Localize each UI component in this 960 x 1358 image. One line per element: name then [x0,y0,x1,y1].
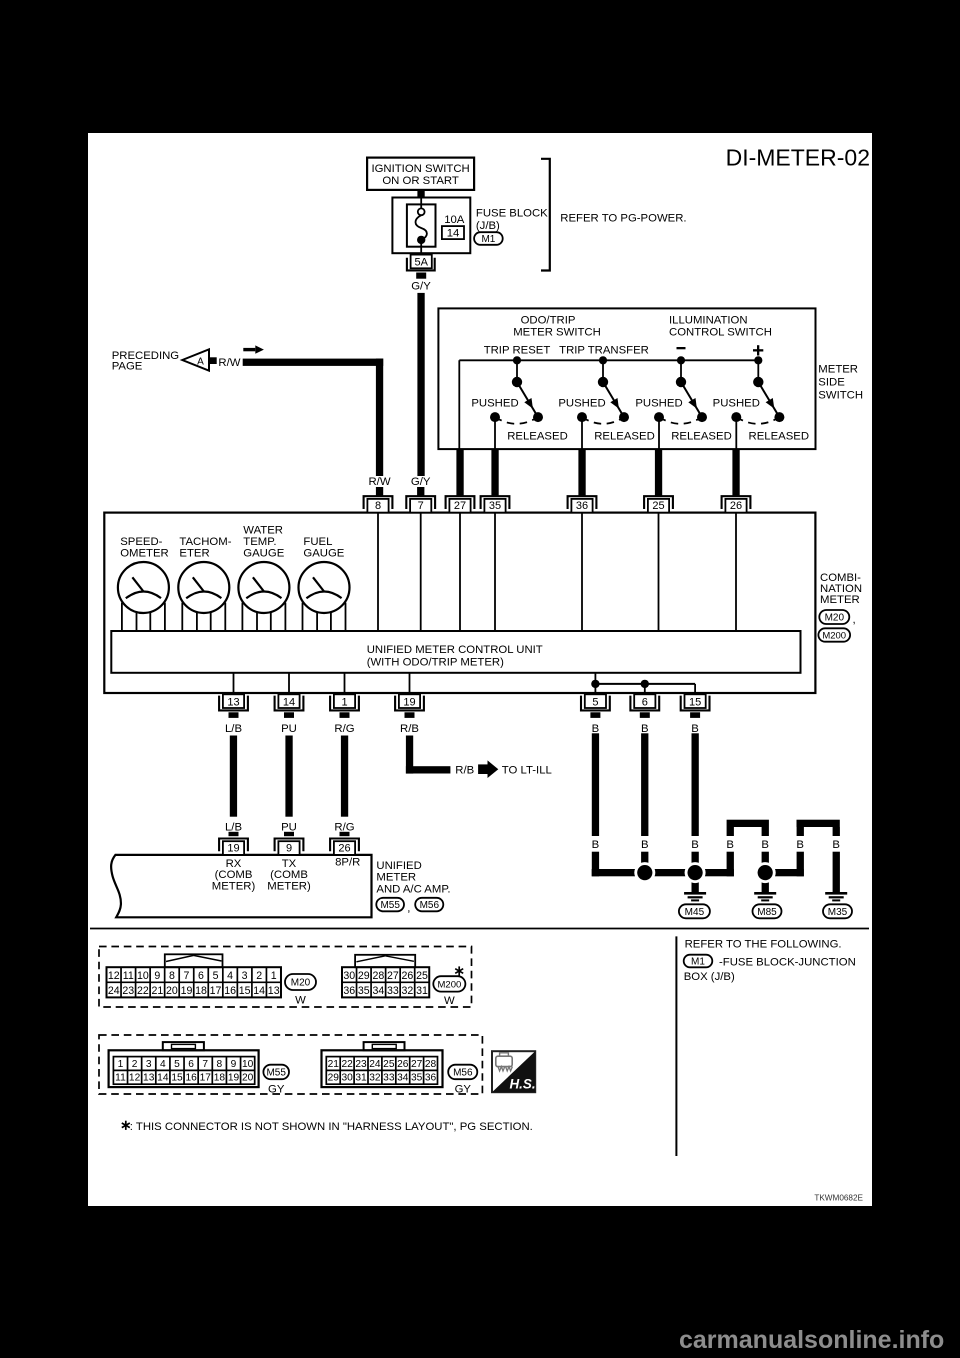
svg-text:23: 23 [355,1059,367,1070]
svg-text:17: 17 [210,985,222,997]
svg-text:15: 15 [171,1073,183,1084]
svg-text:1: 1 [341,696,347,708]
svg-text:3: 3 [242,970,248,982]
svg-text:8: 8 [375,500,381,512]
svg-text:13: 13 [227,696,239,708]
svg-text:23: 23 [122,985,134,997]
svg-text:13: 13 [268,985,280,997]
svg-text:20: 20 [166,985,178,997]
svg-text:carmanualsonline.info: carmanualsonline.info [679,1326,944,1354]
svg-text:35: 35 [358,985,370,997]
svg-text:OMETER: OMETER [120,548,169,560]
svg-text:B: B [641,723,649,735]
svg-text:ON OR START: ON OR START [382,175,459,187]
svg-text:33: 33 [387,985,399,997]
svg-text:28: 28 [425,1059,437,1070]
svg-text:(WITH ODO/TRIP METER): (WITH ODO/TRIP METER) [367,656,504,668]
svg-text:36: 36 [425,1073,437,1084]
svg-text:(COMB: (COMB [270,869,308,881]
svg-text:16: 16 [185,1073,197,1084]
svg-text:(COMB: (COMB [215,869,253,881]
svg-text:RX: RX [226,858,242,870]
svg-text:M85: M85 [757,907,777,918]
svg-text:,: , [407,903,410,915]
svg-text:30: 30 [343,970,355,982]
svg-text:14: 14 [447,228,460,240]
svg-text:ODO/TRIP: ODO/TRIP [521,314,576,326]
svg-text:35: 35 [489,500,501,512]
svg-text:12: 12 [108,970,120,982]
svg-text:26: 26 [338,843,350,855]
svg-text:B: B [691,723,699,735]
svg-text:W: W [295,995,306,1007]
svg-text:14: 14 [283,696,295,708]
svg-text:IGNITION SWITCH: IGNITION SWITCH [371,163,469,175]
svg-text:GAUGE: GAUGE [243,548,284,560]
svg-text:31: 31 [355,1073,367,1084]
svg-text:15: 15 [689,696,701,708]
svg-text:DI-METER-02: DI-METER-02 [726,145,870,171]
svg-text:M56: M56 [453,1068,473,1079]
svg-text:FUSE BLOCK: FUSE BLOCK [476,208,548,220]
svg-text:M200: M200 [822,630,846,641]
svg-text:SIDE: SIDE [818,377,845,389]
svg-text:A: A [197,356,204,367]
svg-text:SPEED-: SPEED- [120,536,162,548]
svg-text:34: 34 [372,985,384,997]
svg-text:,: , [853,614,856,626]
svg-text:M56: M56 [420,900,440,911]
svg-text:GAUGE: GAUGE [303,548,344,560]
svg-text:TRIP TRANSFER: TRIP TRANSFER [559,345,649,357]
svg-text:17: 17 [200,1073,212,1084]
svg-text:BOX (J/B): BOX (J/B) [684,971,735,983]
svg-text:RELEASED: RELEASED [507,430,568,442]
svg-text:B: B [592,723,600,735]
svg-text:27: 27 [387,970,399,982]
svg-text:REFER TO THE FOLLOWING.: REFER TO THE FOLLOWING. [685,938,842,950]
svg-text:TX: TX [282,858,297,870]
svg-text:METER: METER [818,364,858,376]
svg-text:6: 6 [642,696,648,708]
svg-text:11: 11 [115,1073,126,1084]
svg-text:7: 7 [184,970,190,982]
svg-text:B: B [796,839,804,851]
svg-text:1: 1 [118,1059,124,1070]
svg-text:11: 11 [123,970,134,982]
svg-text:M35: M35 [828,907,848,918]
svg-text:METER: METER [820,594,860,606]
svg-text:5: 5 [213,970,219,982]
svg-text:12: 12 [129,1073,141,1084]
svg-text:B: B [832,839,840,851]
svg-text:UNIFIED METER CONTROL UNIT: UNIFIED METER CONTROL UNIT [367,644,543,656]
svg-text:19: 19 [228,1073,240,1084]
svg-text:13: 13 [143,1073,155,1084]
svg-text:RELEASED: RELEASED [594,430,655,442]
svg-text:PUSHED: PUSHED [713,397,760,409]
svg-text:TEMP.: TEMP. [243,536,276,548]
svg-text:PU: PU [281,723,297,735]
svg-text:METER SWITCH: METER SWITCH [513,327,601,339]
svg-text:27: 27 [454,500,466,512]
svg-text:ETER: ETER [179,548,209,560]
svg-text:26: 26 [402,970,414,982]
svg-text:19: 19 [227,843,239,855]
svg-text:6: 6 [188,1059,194,1070]
svg-text:: THIS CONNECTOR IS NOT SHOWN: : THIS CONNECTOR IS NOT SHOWN IN "HARNES… [130,1121,533,1133]
svg-text:TKWM0682E: TKWM0682E [814,1193,863,1202]
svg-text:B: B [761,839,769,851]
svg-text:TACHOM-: TACHOM- [179,536,231,548]
svg-text:PU: PU [281,821,297,833]
svg-text:-FUSE BLOCK-JUNCTION: -FUSE BLOCK-JUNCTION [719,956,856,968]
svg-text:28: 28 [372,970,384,982]
svg-text:2: 2 [132,1059,138,1070]
svg-text:PUSHED: PUSHED [558,397,605,409]
svg-text:B: B [592,839,600,851]
svg-text:15: 15 [239,985,251,997]
svg-text:9: 9 [154,970,160,982]
svg-text:TRIP RESET: TRIP RESET [484,345,551,357]
svg-text:SWITCH: SWITCH [818,390,863,402]
svg-text:B: B [726,839,734,851]
svg-text:R/G: R/G [334,821,354,833]
svg-text:G/Y: G/Y [411,476,431,488]
svg-text:8: 8 [217,1059,223,1070]
svg-text:29: 29 [328,1073,340,1084]
svg-text:26: 26 [397,1059,409,1070]
svg-text:22: 22 [137,985,149,997]
svg-text:18: 18 [195,985,207,997]
svg-text:FUEL: FUEL [303,536,332,548]
svg-text:19: 19 [181,985,193,997]
svg-text:36: 36 [343,985,355,997]
svg-text:WATER: WATER [243,525,283,537]
svg-text:G/Y: G/Y [411,280,431,292]
svg-text:M55: M55 [380,900,400,911]
svg-text:10: 10 [242,1059,254,1070]
svg-text:1: 1 [271,970,277,982]
svg-text:GY: GY [455,1084,472,1096]
svg-text:10: 10 [137,970,149,982]
svg-text:19: 19 [403,696,415,708]
svg-text:2: 2 [256,970,262,982]
svg-text:H.S.: H.S. [510,1077,536,1092]
svg-text:29: 29 [358,970,370,982]
svg-text:32: 32 [369,1073,381,1084]
svg-text:M55: M55 [266,1068,286,1079]
svg-text:L/B: L/B [225,821,242,833]
svg-text:4: 4 [227,970,233,982]
svg-text:25: 25 [652,500,664,512]
svg-text:9: 9 [231,1059,237,1070]
svg-text:34: 34 [397,1073,409,1084]
svg-text:R/W: R/W [218,357,240,369]
svg-text:M45: M45 [685,907,705,918]
svg-text:METER): METER) [267,880,311,892]
svg-text:26: 26 [730,500,742,512]
svg-text:GY: GY [268,1084,285,1096]
svg-text:B: B [691,839,699,851]
svg-text:25: 25 [383,1059,395,1070]
svg-text:18: 18 [214,1073,226,1084]
svg-text:R/B: R/B [400,723,419,735]
svg-text:METER): METER) [212,880,256,892]
svg-text:W: W [444,995,455,1007]
svg-text:5: 5 [592,696,598,708]
svg-text:33: 33 [383,1073,395,1084]
svg-text:27: 27 [411,1059,423,1070]
svg-text:METER: METER [376,872,416,884]
svg-text:ILLUMINATION: ILLUMINATION [669,314,748,326]
svg-text:R/B: R/B [455,764,474,776]
svg-text:PAGE: PAGE [112,361,143,373]
svg-text:PUSHED: PUSHED [635,397,682,409]
svg-text:9: 9 [286,843,292,855]
svg-text:REFER TO PG-POWER.: REFER TO PG-POWER. [560,212,686,224]
svg-text:25: 25 [416,970,428,982]
svg-text:CONTROL SWITCH: CONTROL SWITCH [669,327,772,339]
svg-text:PUSHED: PUSHED [471,397,518,409]
svg-text:32: 32 [402,985,414,997]
svg-text:M20: M20 [291,978,311,989]
svg-text:L/B: L/B [225,723,242,735]
svg-text:4: 4 [160,1059,166,1070]
svg-text:B: B [641,839,649,851]
svg-text:M20: M20 [825,613,845,624]
svg-text:8: 8 [169,970,175,982]
svg-text:16: 16 [224,985,236,997]
svg-text:10A: 10A [444,214,465,226]
svg-text:M1: M1 [481,234,495,245]
svg-text:3: 3 [146,1059,152,1070]
svg-text:20: 20 [242,1073,254,1084]
svg-text:14: 14 [157,1073,169,1084]
svg-text:36: 36 [576,500,588,512]
svg-text:TO LT-ILL: TO LT-ILL [502,765,552,777]
svg-text:7: 7 [418,500,424,512]
svg-text:(J/B): (J/B) [476,220,500,232]
svg-text:7: 7 [202,1059,208,1070]
svg-text:24: 24 [369,1059,381,1070]
svg-text:RELEASED: RELEASED [671,430,732,442]
svg-text:8P/R: 8P/R [335,856,360,868]
svg-text:M1: M1 [691,957,705,968]
svg-text:5A: 5A [414,257,428,269]
svg-text:M200: M200 [438,979,462,990]
svg-text:RELEASED: RELEASED [749,430,810,442]
svg-text:21: 21 [328,1059,340,1070]
svg-text:UNIFIED: UNIFIED [376,860,421,872]
svg-text:AND A/C AMP.: AND A/C AMP. [376,883,450,895]
svg-text:R/G: R/G [334,723,354,735]
svg-text:6: 6 [198,970,204,982]
svg-text:14: 14 [253,985,265,997]
svg-text:R/W: R/W [368,476,390,488]
svg-text:35: 35 [411,1073,423,1084]
svg-text:22: 22 [341,1059,353,1070]
svg-text:31: 31 [416,985,428,997]
svg-text:21: 21 [151,985,163,997]
svg-text:24: 24 [108,985,120,997]
svg-text:5: 5 [174,1059,180,1070]
svg-text:30: 30 [341,1073,353,1084]
